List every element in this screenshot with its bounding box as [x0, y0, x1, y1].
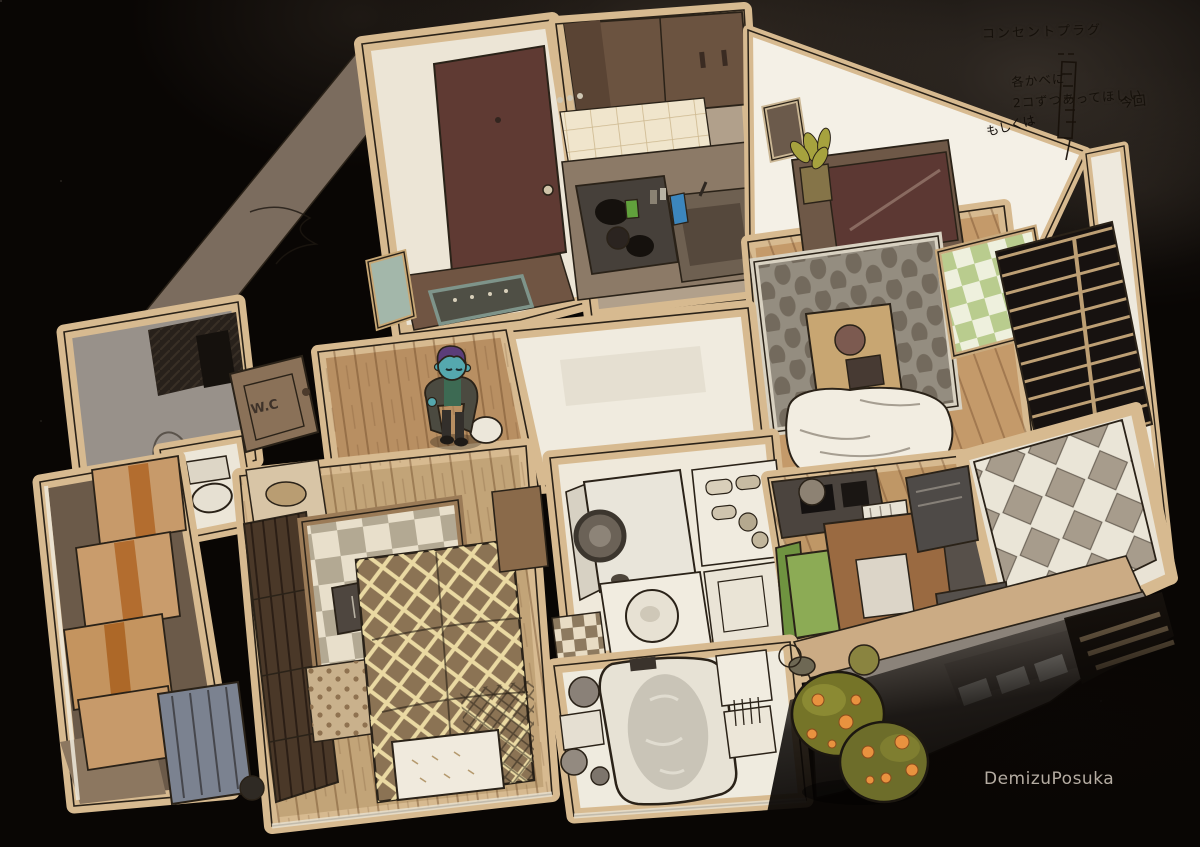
mirror-frame	[368, 252, 414, 328]
pants	[442, 410, 451, 437]
artist-signature: DemizuPosuka	[984, 769, 1114, 789]
pot	[607, 227, 629, 249]
yarn-ball	[240, 776, 264, 800]
artwork-stage: W.C	[0, 0, 1200, 847]
book	[846, 355, 884, 389]
pillow	[392, 730, 504, 800]
green-cup	[625, 200, 639, 219]
wc-door-knob	[302, 388, 310, 396]
bush-2	[840, 722, 928, 802]
blue-bottle	[670, 193, 688, 225]
towel-rack	[716, 650, 772, 706]
washroom	[550, 436, 792, 664]
door-knob	[543, 185, 553, 195]
kitchen	[556, 10, 762, 318]
front-door	[434, 46, 566, 272]
peephole	[495, 117, 501, 123]
olive-pot	[849, 645, 879, 675]
shirt	[444, 379, 461, 406]
desk-cushion	[835, 325, 865, 355]
annotation-side-note: 今回	[1119, 91, 1147, 115]
bathroom	[554, 642, 806, 816]
hand	[428, 398, 437, 407]
basket	[266, 482, 306, 506]
dark-box-1	[906, 466, 978, 552]
white-bag	[470, 417, 502, 443]
round-cushion	[799, 479, 825, 505]
bedside-cabinet	[492, 486, 548, 572]
plant-pot	[800, 164, 832, 204]
table-pad	[856, 554, 914, 618]
wash-bowl	[569, 677, 599, 707]
annotation-outlet-title: コンセントプラグ	[982, 20, 1103, 46]
bath-stool	[560, 710, 604, 750]
